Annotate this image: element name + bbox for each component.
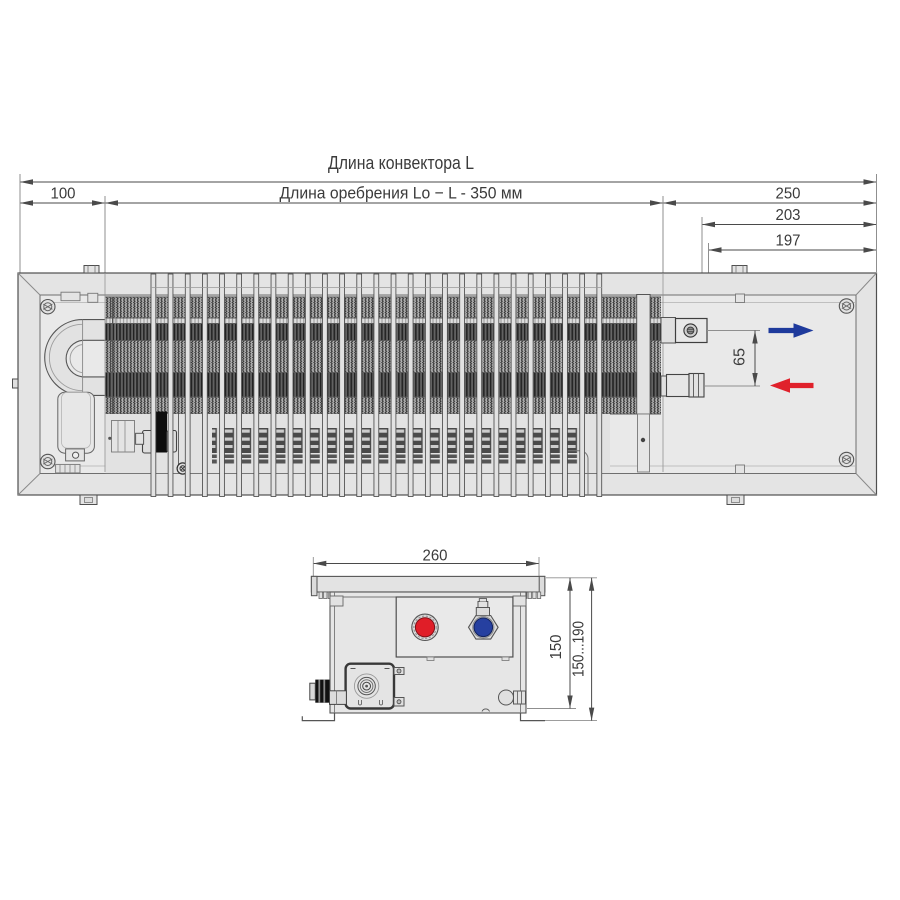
svg-text:150: 150	[548, 634, 565, 659]
svg-text:Длина конвектора L: Длина конвектора L	[328, 153, 474, 173]
svg-text:203: 203	[776, 207, 801, 224]
svg-text:150...190: 150...190	[571, 621, 588, 677]
svg-text:Длина оребрения Lo − L - 350 м: Длина оребрения Lo − L - 350 мм	[280, 184, 523, 203]
svg-text:65: 65	[732, 348, 749, 366]
svg-text:260: 260	[423, 548, 448, 565]
svg-text:250: 250	[776, 186, 801, 203]
svg-text:197: 197	[776, 233, 801, 250]
svg-text:100: 100	[51, 186, 76, 203]
